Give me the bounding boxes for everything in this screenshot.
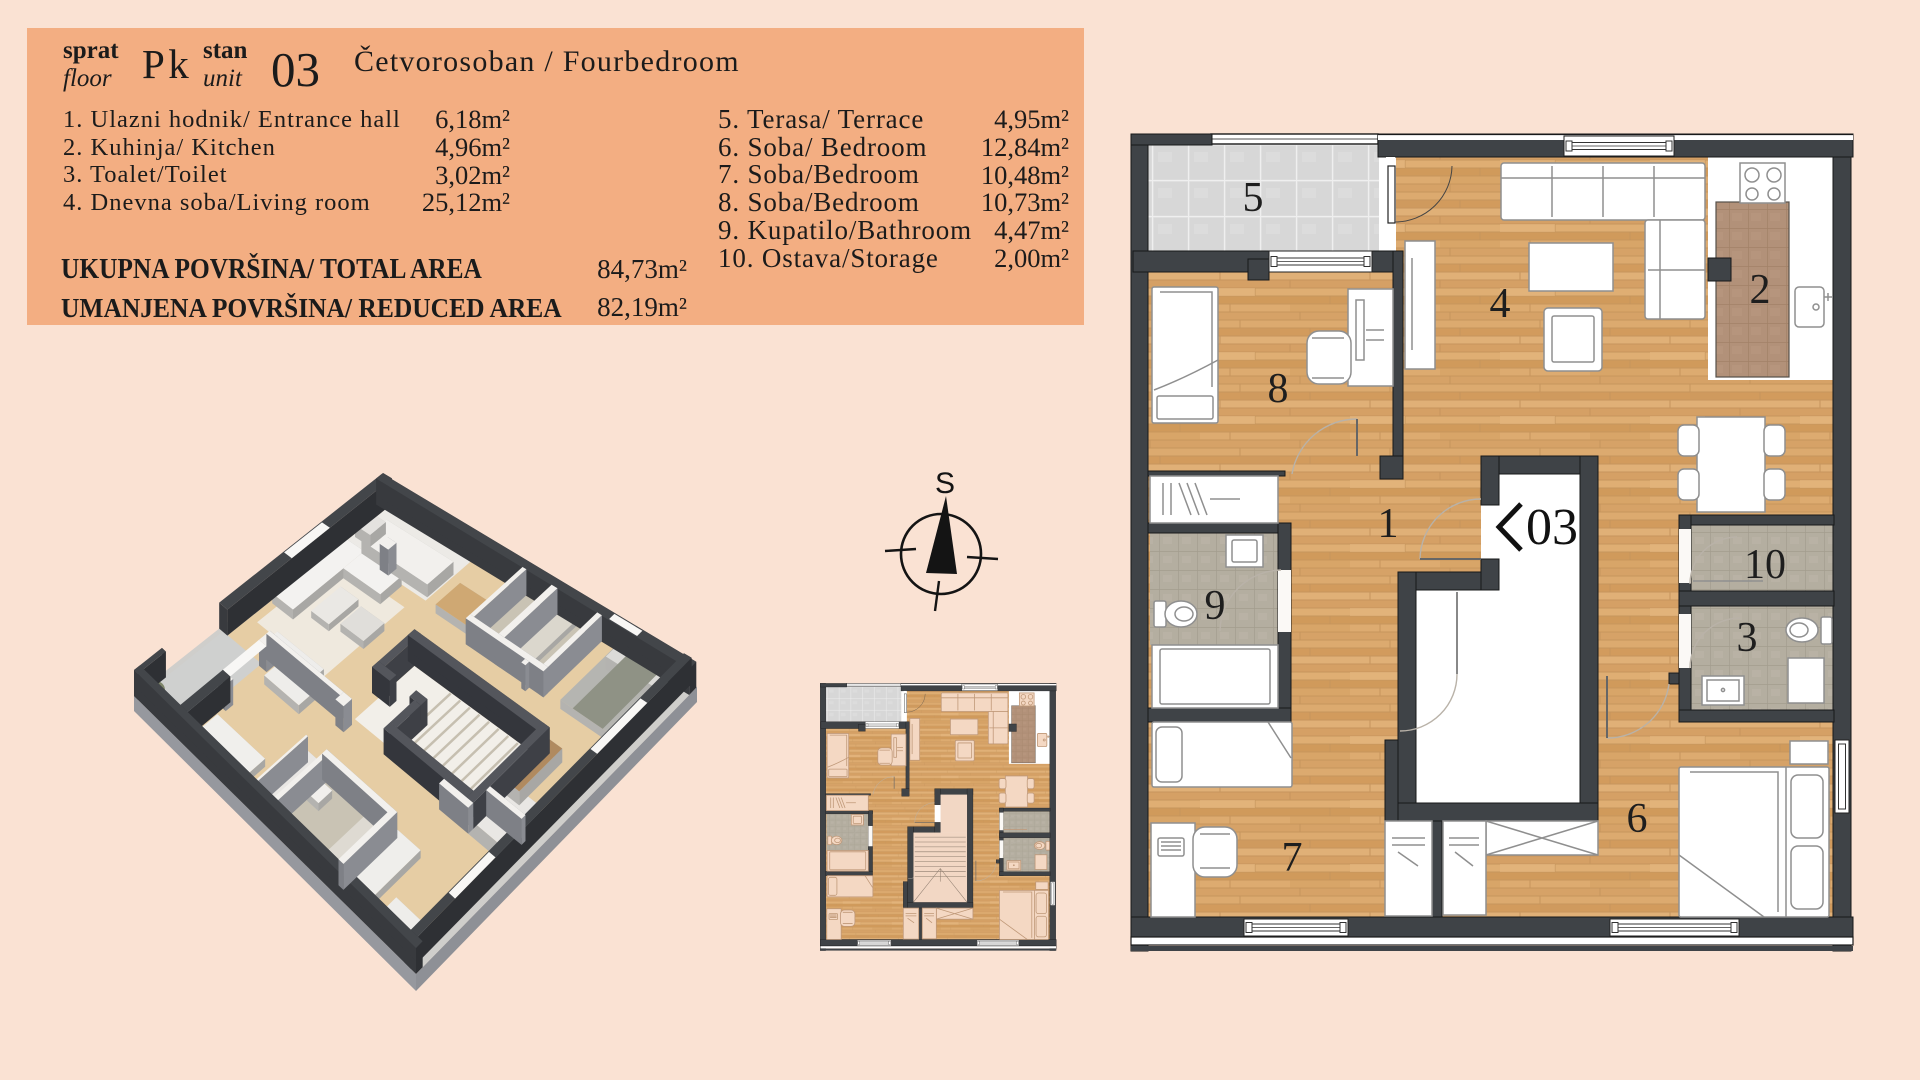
svg-text:5: 5 (1243, 175, 1264, 221)
svg-text:9: 9 (1205, 583, 1226, 629)
svg-text:2: 2 (1750, 267, 1771, 313)
svg-text:8: 8 (1268, 366, 1289, 412)
svg-text:6: 6 (1627, 796, 1648, 842)
svg-text:03: 03 (1526, 499, 1578, 556)
svg-text:7: 7 (1282, 835, 1303, 881)
svg-text:1: 1 (1378, 501, 1399, 547)
svg-text:3: 3 (1737, 615, 1758, 661)
svg-text:S: S (935, 467, 955, 500)
svg-text:10: 10 (1744, 542, 1786, 588)
svg-text:4: 4 (1490, 281, 1511, 327)
